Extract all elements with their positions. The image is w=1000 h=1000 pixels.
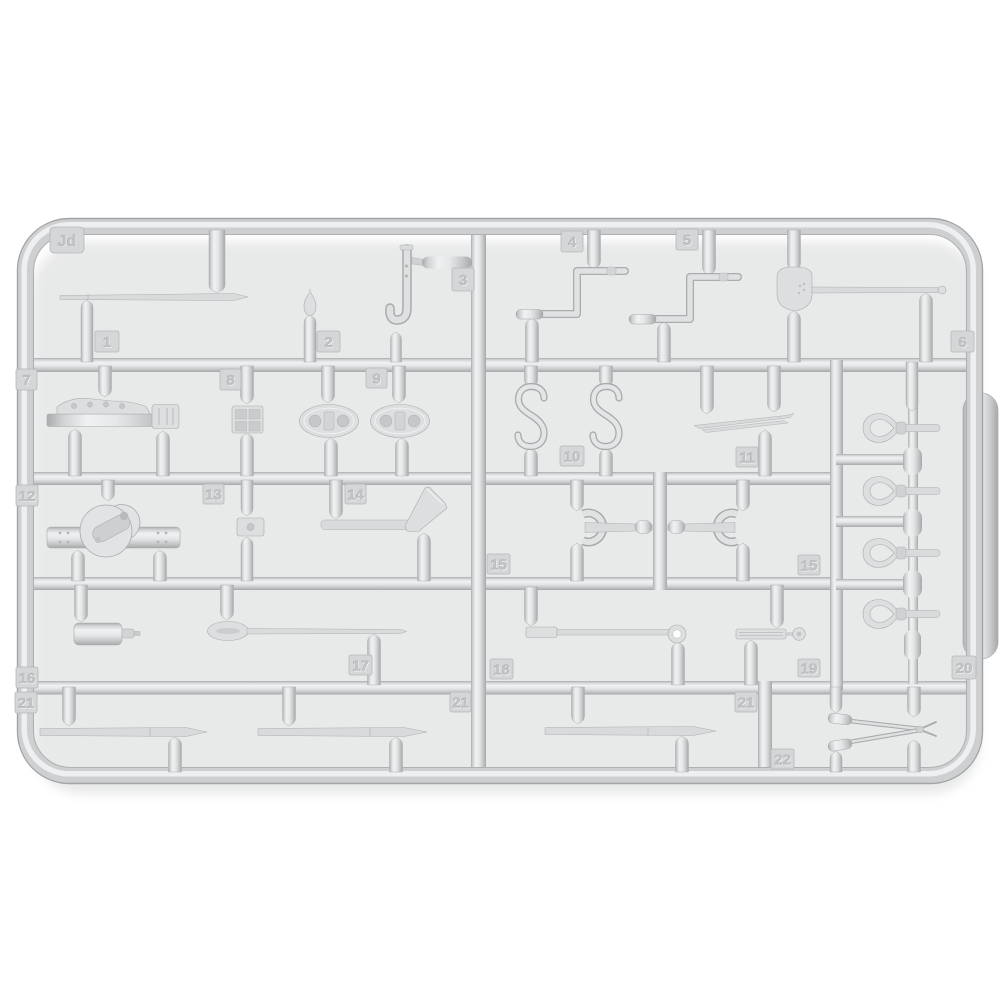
sprue-gate (600, 448, 613, 476)
sprue-gate (906, 362, 918, 411)
sprue-gate (588, 230, 601, 269)
tag-label: 19 (801, 660, 818, 677)
sprue-gate (920, 293, 933, 362)
part-9-shackle-plate (300, 405, 359, 438)
sprue-gate (908, 740, 921, 772)
sprue-gate (325, 438, 338, 476)
sprue-gate (241, 433, 254, 476)
part-number-tag: 1313 (203, 484, 224, 504)
tag-label: 12 (19, 488, 36, 505)
tag-label: 2 (324, 334, 332, 351)
sprue-gate (745, 640, 758, 685)
part-number-tag: JdJd (50, 227, 84, 253)
sprue-gate (788, 230, 801, 271)
tag-label: 6 (958, 334, 966, 351)
part-number-tag: 11 (95, 331, 119, 352)
sprue-gate (241, 537, 253, 581)
part-number-tag: 1414 (345, 484, 366, 504)
sprue-gate (391, 332, 402, 362)
sprue-gate (658, 322, 671, 362)
sprue-gate (703, 230, 716, 275)
sprue-gate (81, 300, 93, 362)
tag-label: 5 (683, 232, 691, 249)
tag-label: 9 (372, 370, 380, 387)
sprue-gate (390, 737, 403, 772)
sprue-gate (908, 687, 921, 717)
tag-label: 21 (452, 694, 469, 711)
sprue-gate (737, 480, 750, 511)
part-number-tag: 44 (561, 231, 583, 252)
tag-label: 10 (564, 448, 581, 465)
sprue-gate (737, 543, 750, 581)
sprue-gate (396, 438, 409, 476)
sprue-gate (768, 366, 781, 412)
sprue-gate (72, 550, 85, 581)
tag-label: 8 (226, 372, 234, 389)
sprue-gate (304, 315, 316, 362)
part-number-tag: 1212 (16, 485, 38, 506)
part-number-tag: 55 (676, 229, 698, 250)
part-number-tag: 1111 (736, 447, 758, 467)
tag-label: 20 (956, 660, 973, 677)
sprue-gate (701, 366, 714, 414)
part-number-tag: 1717 (349, 655, 372, 675)
sprue-gate (63, 687, 76, 726)
sprue-gate (157, 431, 170, 476)
tag-label: 18 (493, 661, 510, 678)
sprue-gate (241, 480, 253, 516)
sprue-gate (771, 585, 784, 628)
sprue-gate (241, 366, 254, 404)
tag-label: 16 (19, 670, 36, 687)
part-number-tag: 1515 (798, 555, 820, 575)
part-number-tag: 1515 (487, 554, 510, 574)
tag-label: 21 (738, 694, 755, 711)
sprue-gate (572, 687, 585, 724)
tag-label: 4 (568, 234, 577, 251)
sprue-photo: JdJd112233445566778899101011111212131314… (0, 0, 1000, 1000)
sprue-gate (676, 736, 689, 772)
part-number-tag: 1818 (490, 659, 513, 679)
sprue-gate (154, 550, 167, 581)
tag-label: 1 (103, 334, 111, 351)
part-number-tag: 2222 (771, 749, 794, 769)
part-number-tag: 33 (452, 268, 474, 291)
sprue-gate (393, 366, 406, 403)
tag-label: 7 (22, 372, 30, 389)
sprue-gate (69, 429, 82, 476)
tag-label: 3 (459, 272, 467, 289)
sprue-gate (571, 480, 584, 511)
sprue-gate (525, 587, 538, 626)
part-21-cleaning-rod (545, 727, 716, 736)
part-number-tag: 77 (16, 369, 37, 390)
sprue-gate (221, 585, 234, 620)
tag-label: Jd (58, 233, 77, 250)
part-number-tag: 1010 (560, 446, 584, 466)
sprue-svg: JdJd112233445566778899101011111212131314… (0, 0, 1000, 1000)
part-number-tag: 66 (951, 331, 974, 352)
tag-label: 13 (205, 486, 222, 503)
part-number-tag: 1616 (16, 667, 38, 688)
tag-label: 22 (774, 751, 791, 768)
part-21-cleaning-rod (258, 728, 427, 737)
sprue-gate (830, 687, 842, 713)
sprue-gate (75, 585, 88, 622)
tag-label: 15 (801, 557, 818, 574)
part-number-tag: 22 (317, 331, 340, 352)
tag-label: 21 (18, 695, 35, 712)
tag-label: 14 (347, 486, 364, 503)
part-number-tag: 99 (366, 368, 387, 388)
part-21-cleaning-rod (40, 728, 207, 737)
sprue-gate (330, 480, 343, 519)
sprue-gate (525, 448, 538, 476)
part-8-grid-plate (232, 406, 263, 433)
sprue-gate (322, 366, 335, 403)
sprue-gate (99, 366, 112, 397)
part-13-clamp-block (237, 518, 264, 536)
sprue-gate (571, 543, 584, 581)
tag-label: 11 (739, 449, 755, 466)
part-9-shackle-plate (371, 405, 430, 438)
tag-label: 15 (490, 556, 507, 573)
sprue-gate (526, 318, 539, 362)
part-number-tag: 2121 (15, 692, 37, 713)
sprue-gate (759, 430, 772, 476)
sprue-gate (672, 642, 685, 685)
part-number-tag: 88 (220, 369, 241, 390)
sprue-gate (788, 311, 801, 362)
part-1-long-rod (60, 294, 248, 301)
part-number-tag: 2121 (735, 692, 757, 712)
sprue-gate (169, 737, 182, 772)
sprue-gate (209, 230, 225, 293)
part-number-tag: 2121 (450, 692, 471, 712)
sprue-gate (418, 533, 431, 581)
tag-label: 17 (352, 657, 369, 674)
sprue-gate (102, 480, 115, 501)
part-number-tag: 2020 (952, 656, 976, 679)
sprue-gate (830, 751, 842, 772)
sprue-gate (283, 687, 296, 726)
part-19-ribbed-bar (736, 628, 805, 641)
part-number-tag: 1919 (798, 659, 820, 678)
